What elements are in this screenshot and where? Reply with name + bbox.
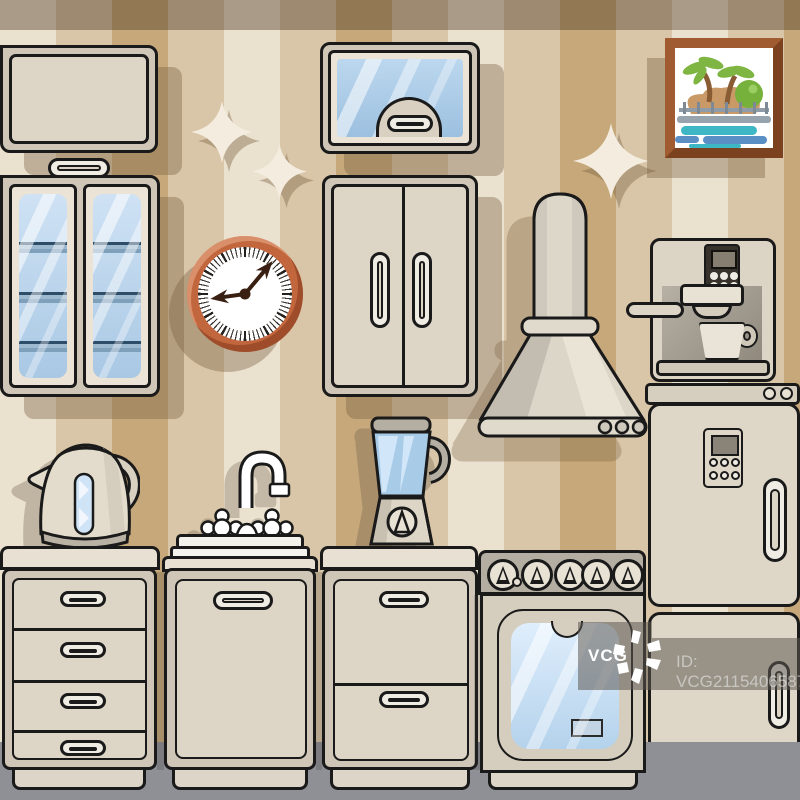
flip-wall-cabinet-door — [9, 54, 149, 144]
cabinet-handle — [387, 115, 433, 132]
cabinet-gap — [474, 595, 480, 770]
drawer-handle — [379, 691, 429, 708]
sink-cabinet — [164, 568, 316, 770]
drawer-handle — [60, 740, 106, 756]
fridge-knob — [763, 387, 776, 400]
coffee-display — [711, 250, 737, 269]
kettle — [15, 438, 140, 552]
drawer-cabinet — [2, 568, 157, 770]
mirror-wall-cabinet-door — [328, 50, 472, 146]
clock-hands — [198, 247, 292, 341]
cabinet-handle-left — [370, 252, 390, 328]
door-divider — [402, 187, 405, 385]
cabinet-handle — [213, 591, 273, 610]
coffee-button — [710, 272, 718, 280]
counter — [0, 546, 160, 570]
sparkle-icon — [191, 100, 253, 164]
fridge-button — [731, 458, 740, 467]
stove-knob — [612, 559, 644, 591]
stove-knob — [581, 559, 613, 591]
glass-pane — [19, 194, 67, 378]
ceiling-shadow-band — [0, 0, 800, 30]
stove-indicator — [512, 577, 522, 587]
two-drawer-cabinet — [322, 568, 478, 770]
drawer-stack — [12, 578, 147, 760]
fridge-handle — [763, 478, 787, 562]
cabinet-gap — [157, 572, 164, 770]
counter — [320, 546, 478, 570]
stove-knob — [521, 559, 553, 591]
fridge-button — [720, 458, 729, 467]
clock-face — [198, 247, 292, 341]
cabinet-handle-right — [412, 252, 432, 328]
fridge-knob — [780, 387, 793, 400]
double-door-cabinet — [322, 175, 478, 397]
picture-frame — [665, 38, 783, 158]
drawer-handle — [60, 693, 106, 709]
fridge-control-panel — [703, 428, 743, 488]
cabinet-gap — [316, 572, 322, 770]
drawer-handle — [60, 591, 106, 607]
stove-control-panel — [478, 550, 646, 595]
fridge-button — [731, 471, 740, 480]
flip-wall-cabinet — [0, 45, 158, 153]
coffee-cup — [698, 322, 746, 360]
kitchen-illustration: VCG ID: VCG211540658702 — [0, 0, 800, 800]
group-head — [680, 284, 744, 306]
wall-clock — [187, 236, 303, 352]
sparkle-icon — [573, 122, 649, 200]
blender — [352, 412, 452, 552]
fridge-button — [709, 458, 718, 467]
mirror-wall-cabinet — [320, 42, 480, 154]
coffee-machine — [650, 238, 776, 382]
drawer-handle — [60, 642, 106, 658]
sink-cabinet-door — [175, 579, 307, 759]
fridge — [645, 383, 800, 783]
fridge-button — [720, 471, 729, 480]
drawer-stack — [333, 579, 469, 761]
drawer-handle — [379, 591, 429, 608]
picture-art — [675, 48, 773, 148]
coffee-button — [720, 272, 728, 280]
glass-pane — [93, 194, 141, 378]
sparkle-icon — [252, 143, 307, 200]
double-door-cabinet-doors — [331, 184, 469, 388]
drip-tray — [656, 360, 770, 376]
portafilter-handle — [626, 302, 684, 318]
range-hood — [477, 190, 648, 438]
vcg-starburst-icon — [613, 628, 665, 686]
coffee-button — [730, 272, 738, 280]
glass-cabinet-door-left — [9, 184, 77, 388]
glass-cabinet-door-right — [83, 184, 151, 388]
fridge-main-door — [648, 403, 800, 607]
fridge-display — [711, 435, 739, 456]
watermark-id-text: ID: VCG211540658702 — [676, 652, 800, 692]
fridge-button — [709, 471, 718, 480]
glass-cabinet — [0, 175, 160, 397]
fridge-top-ledge — [645, 383, 800, 405]
oven-window-label — [571, 719, 603, 737]
